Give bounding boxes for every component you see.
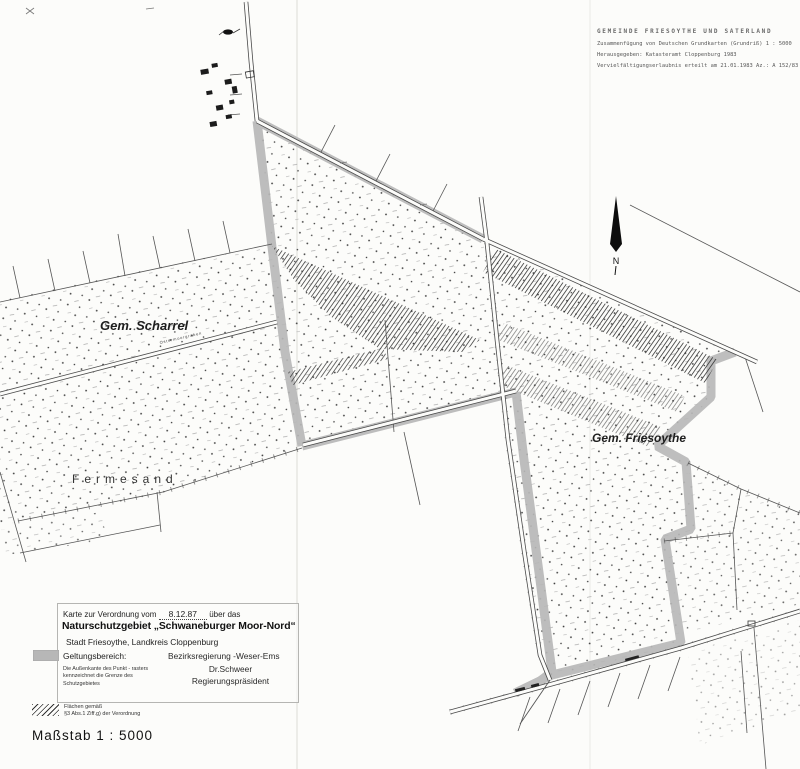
signer-name: Dr.Schweer: [168, 664, 293, 674]
north-arrow: N: [610, 196, 622, 275]
legend-ordinance-date: 8.12.87: [159, 609, 207, 620]
geltungsbereich-swatch: [33, 650, 59, 661]
legend-intro-post: über das: [209, 610, 240, 619]
scale-label: Maßstab 1 : 5000: [32, 728, 153, 743]
header-source: Zusammenfügung von Deutschen Grundkarten…: [597, 41, 800, 47]
label-fermesand: Fermesand: [72, 472, 178, 486]
authority-name: Bezirksregierung -Weser-Ems: [168, 651, 280, 661]
header-municipalities: GEMEINDE FRIESOYTHE UND SATERLAND: [597, 28, 800, 35]
legend-intro-line: Karte zur Verordnung vom 8.12.87 über da…: [63, 609, 240, 619]
hatch-label: Flächen gemäß §3 Abs.1 Ziff.g) der Veror…: [64, 704, 140, 718]
hatch-swatch: [32, 704, 59, 716]
map-sheet-header: GEMEINDE FRIESOYTHE UND SATERLAND Zusamm…: [597, 28, 800, 74]
map-symbol-top: [219, 29, 240, 35]
header-publisher: Herausgegeben: Katasteramt Cloppenburg 1…: [597, 52, 800, 58]
north-arrow-label: N: [613, 256, 620, 266]
scanned-map-page: N Gem. Scharrel Fermesand Gem. Friesoyth…: [0, 0, 800, 769]
hatch-label-line2: §3 Abs.1 Ziff.g) der Verordnung: [64, 711, 140, 718]
label-gem-scharrel: Gem. Scharrel: [100, 318, 189, 333]
header-permission: Vervielfältigungserlaubnis erteilt am 21…: [597, 63, 800, 69]
scope-label: Geltungsbereich:: [63, 651, 126, 661]
legend-intro-pre: Karte zur Verordnung vom: [63, 610, 156, 619]
signer-title: Regierungspräsident: [168, 676, 293, 686]
scope-note: Die Außenkante des Punkt - rasters kennz…: [63, 666, 157, 688]
legend-title: Naturschutzgebiet „Schwaneburger Moor-No…: [62, 621, 296, 632]
hatch-label-line1: Flächen gemäß: [64, 704, 140, 711]
legend-subtitle: Stadt Friesoythe, Landkreis Cloppenburg: [66, 637, 218, 647]
label-gem-friesoythe: Gem. Friesoythe: [592, 431, 686, 445]
